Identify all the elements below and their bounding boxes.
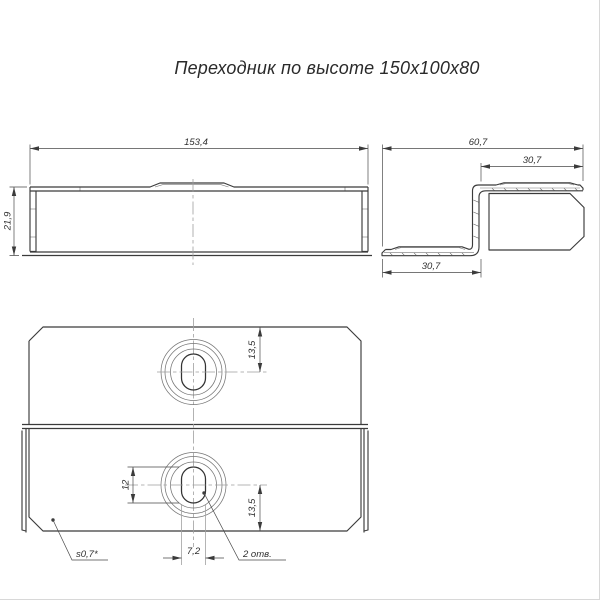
dim-hole-bottom-offset-value: 13,5: [247, 498, 258, 517]
end-side-wall: [489, 194, 584, 251]
leader-holes-note: 2 отв.: [202, 491, 286, 560]
dim-end-width-value: 60,7: [469, 137, 488, 148]
drawing-sheet: Переходник по высоте 150х100х80 153,4 21…: [0, 0, 600, 600]
sheet-border: [0, 0, 600, 600]
holes-note-label: 2 отв.: [242, 549, 272, 560]
dim-hole-top-offset-value: 13,5: [247, 340, 258, 359]
side-view: 153,4 21,9: [3, 137, 373, 265]
end-view: 60,7 30,7 30,7: [382, 137, 584, 278]
plan-upper-panel: [29, 327, 361, 424]
leader-thickness-note: s0,7*: [51, 518, 108, 560]
dim-slot-length-value: 12: [121, 479, 132, 490]
end-profile-outer: [386, 183, 584, 250]
side-top-edge: [30, 183, 368, 191]
side-bump-inner: [155, 185, 229, 187]
dim-end-flange-bottom-value: 30,7: [422, 261, 441, 272]
end-hatch-ticks: [390, 188, 577, 255]
thickness-note-label: s0,7*: [76, 549, 98, 560]
dim-side-length: 153,4: [30, 137, 368, 185]
dim-end-flange-top: 30,7: [481, 155, 583, 182]
dim-end-flange-bottom: 30,7: [383, 259, 482, 278]
hole-bottom: [125, 453, 267, 518]
dim-hole-bottom-offset: 13,5: [247, 485, 262, 531]
dim-side-height-value: 21,9: [3, 211, 14, 231]
dim-side-length-value: 153,4: [184, 137, 208, 148]
dim-side-height: 21,9: [3, 187, 28, 256]
plan-bend-lines: [22, 425, 368, 429]
side-bottom-edges: [22, 252, 372, 256]
side-end-flanges: [30, 191, 368, 252]
plan-right-flange: [364, 429, 368, 533]
plan-left-flange: [22, 429, 26, 533]
technical-drawing: Переходник по высоте 150х100х80 153,4 21…: [0, 0, 600, 600]
plan-view: 13,5 12 13,5 7,2 2: [22, 318, 368, 565]
drawing-title: Переходник по высоте 150х100х80: [174, 58, 479, 78]
dim-hole-top-offset: 13,5: [247, 328, 262, 373]
end-profile-inner: [382, 191, 583, 256]
plan-lower-panel: [29, 429, 361, 531]
dim-slot-width-value: 7,2: [187, 546, 201, 557]
side-tick-marks: [31, 188, 368, 238]
dim-end-flange-top-value: 30,7: [523, 155, 542, 166]
